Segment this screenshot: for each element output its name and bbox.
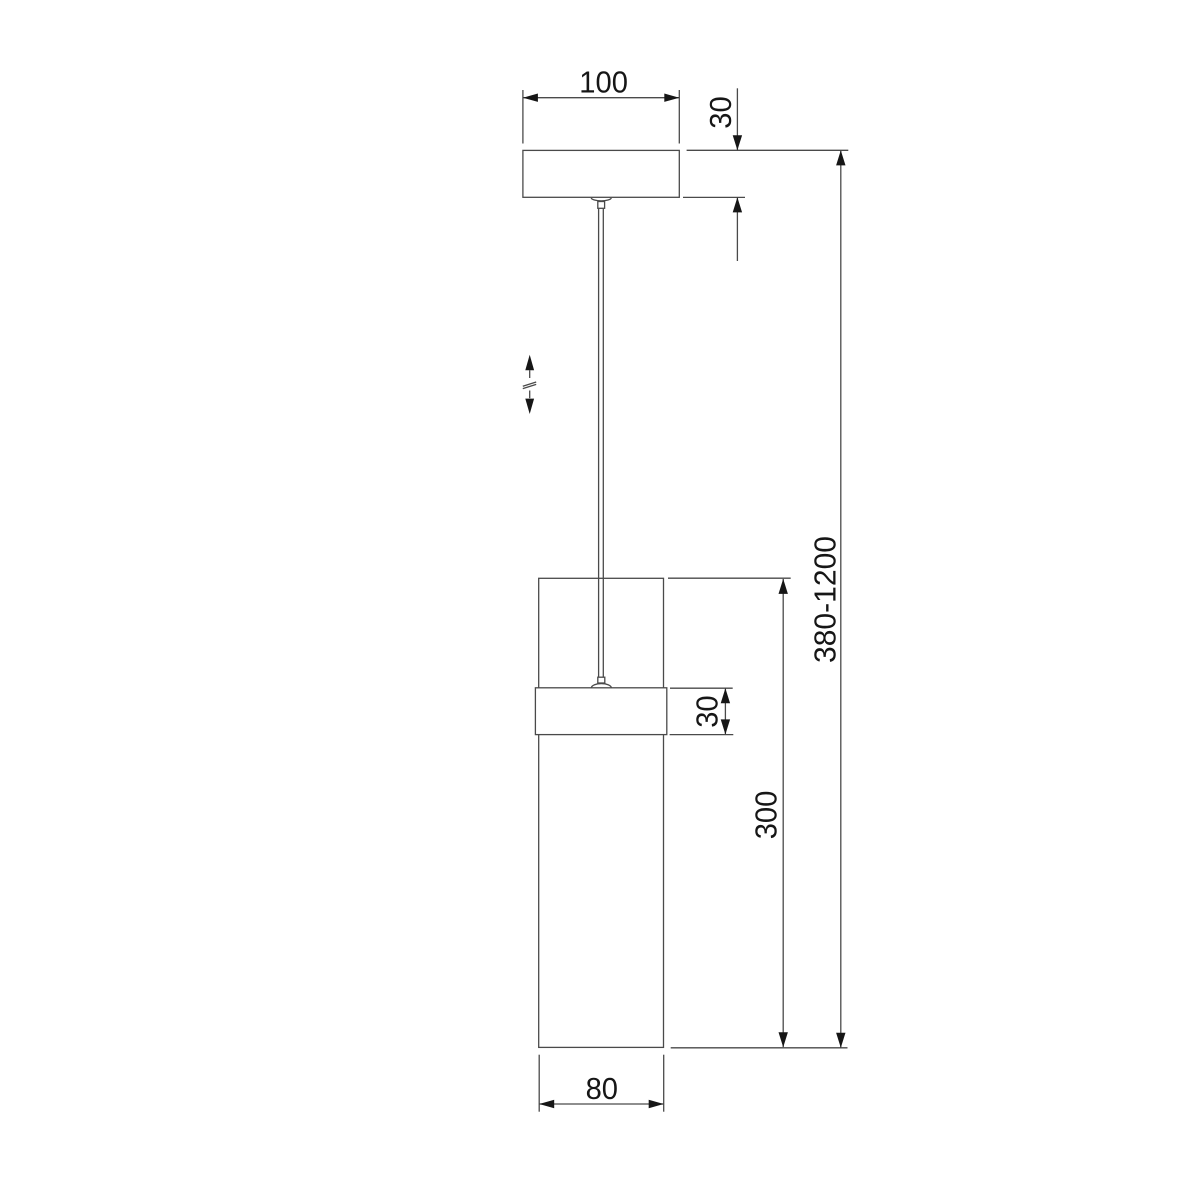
svg-text:380-1200: 380-1200 xyxy=(808,536,843,663)
svg-text:30: 30 xyxy=(704,96,738,128)
svg-text:80: 80 xyxy=(586,1072,618,1106)
svg-text:100: 100 xyxy=(579,66,628,100)
svg-text:30: 30 xyxy=(691,695,725,727)
svg-text:300: 300 xyxy=(750,791,784,840)
